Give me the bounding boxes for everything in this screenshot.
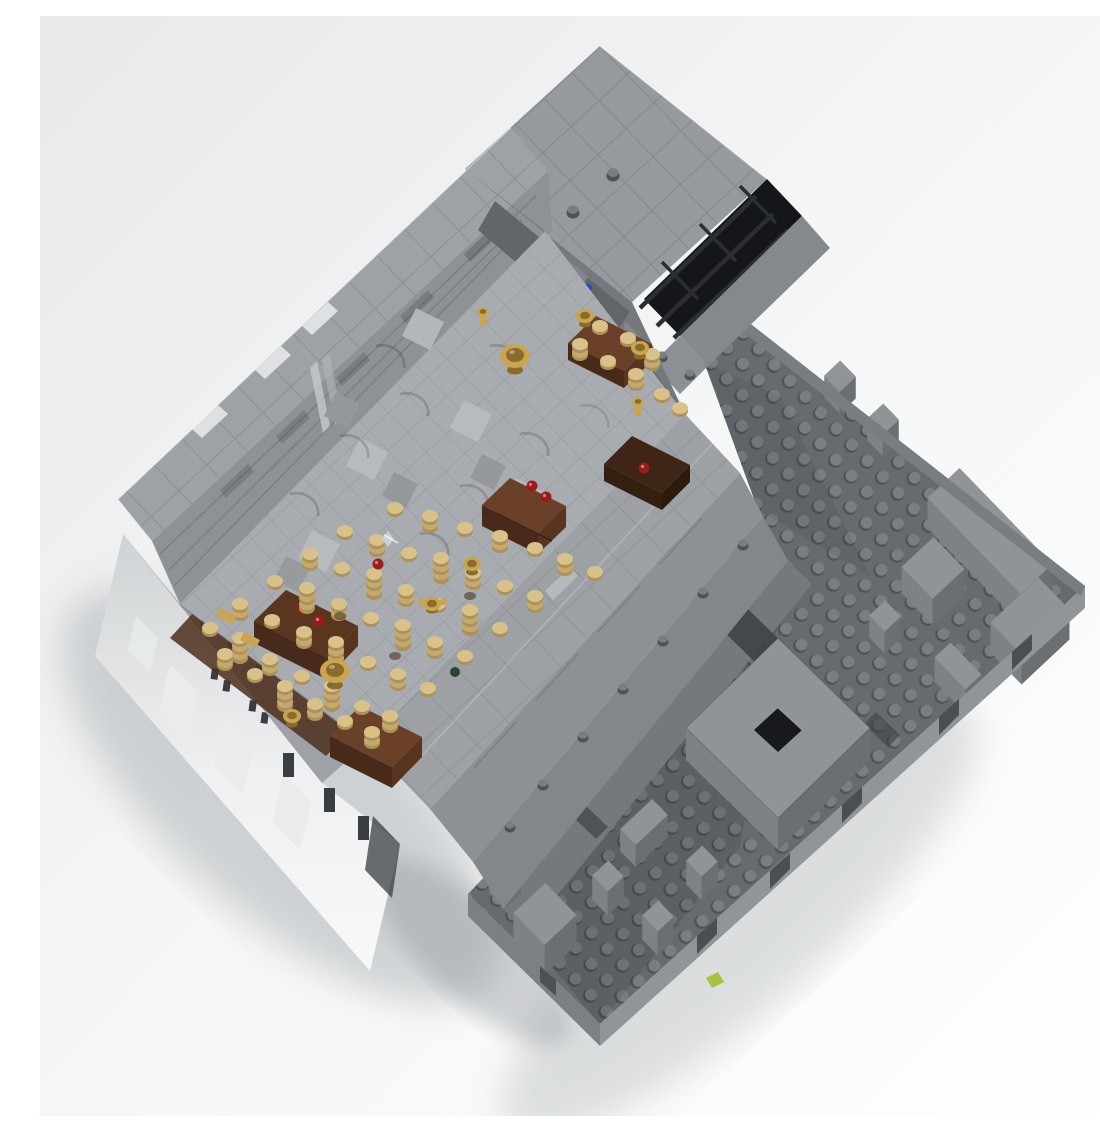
render-canvas (40, 16, 1100, 1116)
coin-stack (354, 700, 370, 715)
coin-stack (299, 582, 315, 614)
coin-stack (267, 575, 283, 590)
coin-stack (337, 525, 353, 540)
coin-stack (457, 650, 473, 665)
coin-stack (497, 580, 513, 595)
coin-stack (363, 612, 379, 627)
coin-stack (369, 534, 385, 557)
coin-stack (395, 619, 411, 651)
coin-stack (307, 698, 323, 721)
coin-stack (334, 562, 350, 577)
coin-stack (422, 510, 438, 533)
coin-stack (592, 320, 608, 335)
red-gem (541, 492, 552, 503)
coin-stack (382, 710, 398, 733)
coin-stack (401, 547, 417, 562)
coin-stack (390, 668, 406, 691)
coin-stack (457, 522, 473, 537)
coin-stack (587, 566, 603, 581)
red-gem (314, 616, 325, 627)
coin-stack (572, 338, 588, 361)
coin-stack (366, 568, 382, 600)
coin-stack (433, 552, 449, 584)
window-slit (283, 753, 294, 777)
coin-stack (527, 542, 543, 557)
coin-stack (296, 626, 312, 649)
coin-stack (217, 648, 233, 671)
coin-stack (628, 368, 644, 391)
coin-stack (462, 604, 478, 636)
coin-stack (302, 548, 318, 571)
coin-stack (264, 614, 280, 629)
coin-stack (492, 530, 508, 553)
coin-stack (600, 355, 616, 370)
coin-stack (387, 502, 403, 517)
coin-stack (492, 622, 508, 637)
red-gem (373, 559, 384, 570)
coin-stack (427, 636, 443, 659)
coin-stack (527, 590, 543, 613)
coin-stack (398, 584, 414, 607)
coin-stack (364, 726, 380, 749)
coin-stack (294, 670, 310, 685)
lego-moc-render (40, 16, 1100, 1116)
coin-stack (420, 682, 436, 697)
coin-stack (202, 622, 218, 637)
coin-stack (277, 680, 293, 712)
coin-stack (337, 715, 353, 730)
window-slit (358, 816, 369, 840)
coin-stack (262, 653, 278, 676)
coin-stack (654, 388, 670, 403)
coin-stack (672, 402, 688, 417)
window-slit (324, 788, 335, 812)
coin-stack (247, 668, 263, 683)
red-gem (639, 463, 650, 474)
coin-stack (557, 553, 573, 576)
dark-green-gem (450, 667, 460, 677)
coin-stack (360, 656, 376, 671)
red-gem (527, 481, 538, 492)
